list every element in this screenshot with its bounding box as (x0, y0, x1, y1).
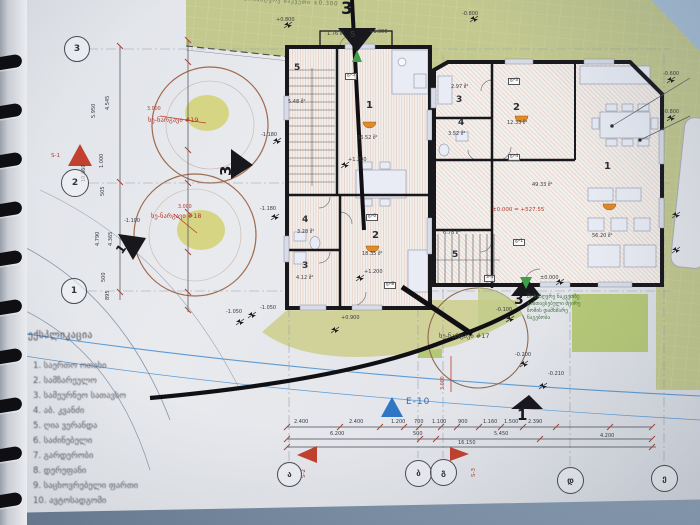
door-tag: დ-8 (384, 282, 396, 289)
room-number: 4 (458, 119, 464, 128)
grid-bubble-e: ე (651, 465, 678, 492)
level-mark: -0.600 (663, 72, 679, 77)
tree-label-19: ხე-ნარგავი #19 (148, 117, 198, 124)
room-number: 3 (302, 262, 308, 271)
dimension: 4.365 (109, 232, 114, 246)
dimension: 505 (101, 186, 106, 196)
dimension: 895 (106, 290, 111, 300)
section-mark-3-top: 3 (341, 1, 353, 18)
site-note-line: ზომის დამხმარე (527, 309, 568, 314)
section-label-s1: S-1 (51, 154, 60, 160)
dimension: 5.950 (92, 104, 97, 118)
room-number: 3 (456, 96, 462, 105)
site-note-line: განთავსებული მცირე (527, 302, 581, 307)
level-mark: +1.200 (364, 270, 383, 275)
tree-label-18: ხე-ნარგავი #18 (151, 213, 201, 220)
site-note-line: ნაგებობა (527, 316, 550, 321)
utility-label-e10: E-10 (406, 398, 430, 407)
dimension: 2.390 (528, 420, 542, 425)
section-mark-3-left: 3 (219, 166, 234, 176)
level-mark: ±0.000 (540, 276, 559, 281)
room-area: 49.33 მ² (532, 183, 553, 188)
grid-bubble-a: ა (277, 462, 302, 487)
grid-bubble-2: 2 (61, 169, 89, 197)
tree-radius: 3.000 (178, 206, 192, 211)
dimension: 1.160 (483, 420, 497, 425)
room-area: 3.28 მ² (297, 230, 314, 235)
level-mark: -0.100 (496, 308, 512, 313)
room-area: 3.52 მ² (448, 132, 465, 137)
dimension: 2.400 (349, 420, 363, 425)
legend-item: 7. გარდერობი (33, 451, 93, 461)
tree-label-17: ხე-ნარგავი #17 (439, 333, 489, 340)
tree-radius: 3.000 (147, 108, 161, 113)
dimension-total: 16.150 (458, 441, 476, 446)
legend-item: 5. ღია ვერანდა (33, 421, 97, 431)
legend-item: 8. დერეფანი (33, 466, 86, 476)
dimension: 6.200 (330, 432, 344, 437)
dimension: 500 (102, 272, 107, 282)
door-tag: 3-4 (484, 275, 495, 282)
door-tag: დ-6 (366, 214, 378, 221)
level-mark: +1.200 (348, 158, 367, 163)
grid-bubble-1: 1 (61, 278, 87, 304)
legend-item: 4. აბ. კვანძი (33, 406, 84, 416)
room-area: 4.12 მ² (296, 276, 313, 281)
room-number: 1 (604, 162, 611, 172)
dimension: 4.545 (106, 96, 111, 110)
dimension: 2.400 (294, 420, 308, 425)
legend-item: 9. საცხოვრებელი ფართი (33, 481, 138, 491)
dimension: 1.000 (100, 154, 105, 168)
level-mark: -0.800 (663, 110, 679, 115)
section-label-s3: S-3 (472, 468, 478, 477)
level-mark: -1.180 (261, 133, 277, 138)
room-number: 4 (302, 216, 308, 225)
level-mark: +0.900 (341, 316, 360, 321)
grid-bubble-d: დ (557, 467, 584, 494)
room-area: 1.76 მ² (327, 32, 344, 37)
dimension: 700 (414, 420, 424, 425)
tree-18 (134, 174, 256, 296)
level-mark: +1.300 (369, 30, 388, 35)
section-mark-1-bottom: 1 (517, 408, 527, 423)
datum-elevation: ±0.000 = +527.55 (492, 208, 544, 214)
room-area: 18.35 მ² (362, 252, 383, 257)
room-number: 5 (294, 64, 300, 73)
site-note-line: მოსაზღვრე ნაკვეთზე (527, 295, 580, 300)
room-number: 5 (350, 31, 356, 39)
door-tag: დ-1 (513, 239, 525, 246)
level-mark: -0.200 (515, 353, 531, 358)
dimension: 500 (413, 432, 423, 437)
dimension: 1.100 (432, 420, 446, 425)
grid-bubble-3: 3 (64, 36, 90, 62)
room-area: 36.52 მ² (357, 136, 378, 141)
legend: ექსპლიკაცია 1. საერთო ოთახი 2. სამზარეულ… (28, 330, 93, 341)
section-label-s2: S-2 (302, 469, 308, 478)
legend-item: 2. სამზარეულო (33, 376, 97, 386)
level-mark: -1.050 (226, 310, 242, 315)
legend-item: 3. სამეურნეო სათავსო (33, 391, 126, 401)
level-mark: -1.100 (124, 219, 140, 224)
room-number: 2 (513, 103, 520, 113)
dimension: 4.790 (96, 232, 101, 246)
room-area: 56.20 მ² (592, 234, 613, 239)
legend-item: 1. საერთო ოთახი (33, 361, 107, 371)
room-area: 2.97 მ² (451, 85, 468, 90)
door-tag: დ-4 (508, 154, 520, 161)
door-tag: დ-5 (345, 73, 357, 80)
architectural-plan-photo: +0.800 -0.800 +1.300 +1.200 +1.200 -1.18… (0, 0, 700, 525)
level-mark: -0.210 (548, 372, 564, 377)
tree-radius: 3.000 (442, 376, 447, 390)
grid-bubble-g: გ (430, 459, 457, 486)
level-mark: -1.180 (260, 207, 276, 212)
level-mark: -1.050 (260, 306, 276, 311)
door-tag: დ-3 (508, 78, 520, 85)
dimension: 4.200 (600, 434, 614, 439)
room-area: 5.48 მ² (288, 100, 305, 105)
level-mark: -0.800 (462, 12, 478, 17)
dimension: 900 (458, 420, 468, 425)
dimension: 1.200 (391, 420, 405, 425)
room-area: 6.78 მ² (443, 231, 460, 236)
dimension: 5.450 (494, 432, 508, 437)
level-mark: +0.800 (276, 18, 295, 23)
room-number: 1 (366, 101, 373, 111)
room-number: 5 (452, 251, 458, 260)
room-area: 12.33 მ² (507, 121, 528, 126)
section-mark-3-bottom: 3 (514, 293, 524, 307)
room-number: 2 (372, 231, 379, 241)
legend-item: 10. ავტოსადგომი (33, 496, 106, 506)
grid-bubble-b: ბ (405, 460, 432, 487)
legend-item: 6. საძინებელი (33, 436, 92, 446)
legend-title: ექსპლიკაცია (28, 330, 93, 341)
